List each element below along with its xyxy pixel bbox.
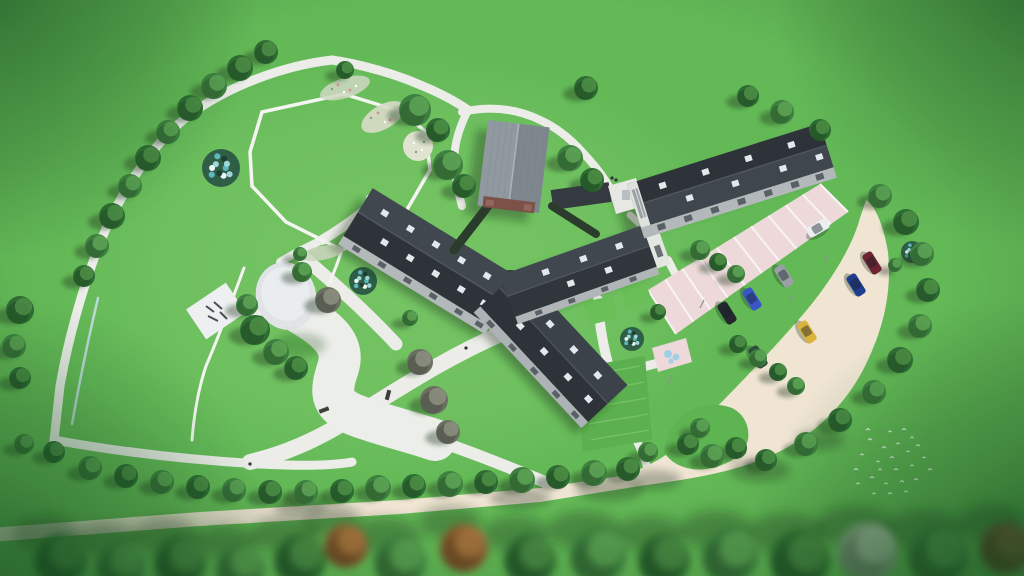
site-plan-canvas xyxy=(0,0,1024,576)
aerial-render xyxy=(0,0,1024,576)
vignette xyxy=(0,0,1024,576)
